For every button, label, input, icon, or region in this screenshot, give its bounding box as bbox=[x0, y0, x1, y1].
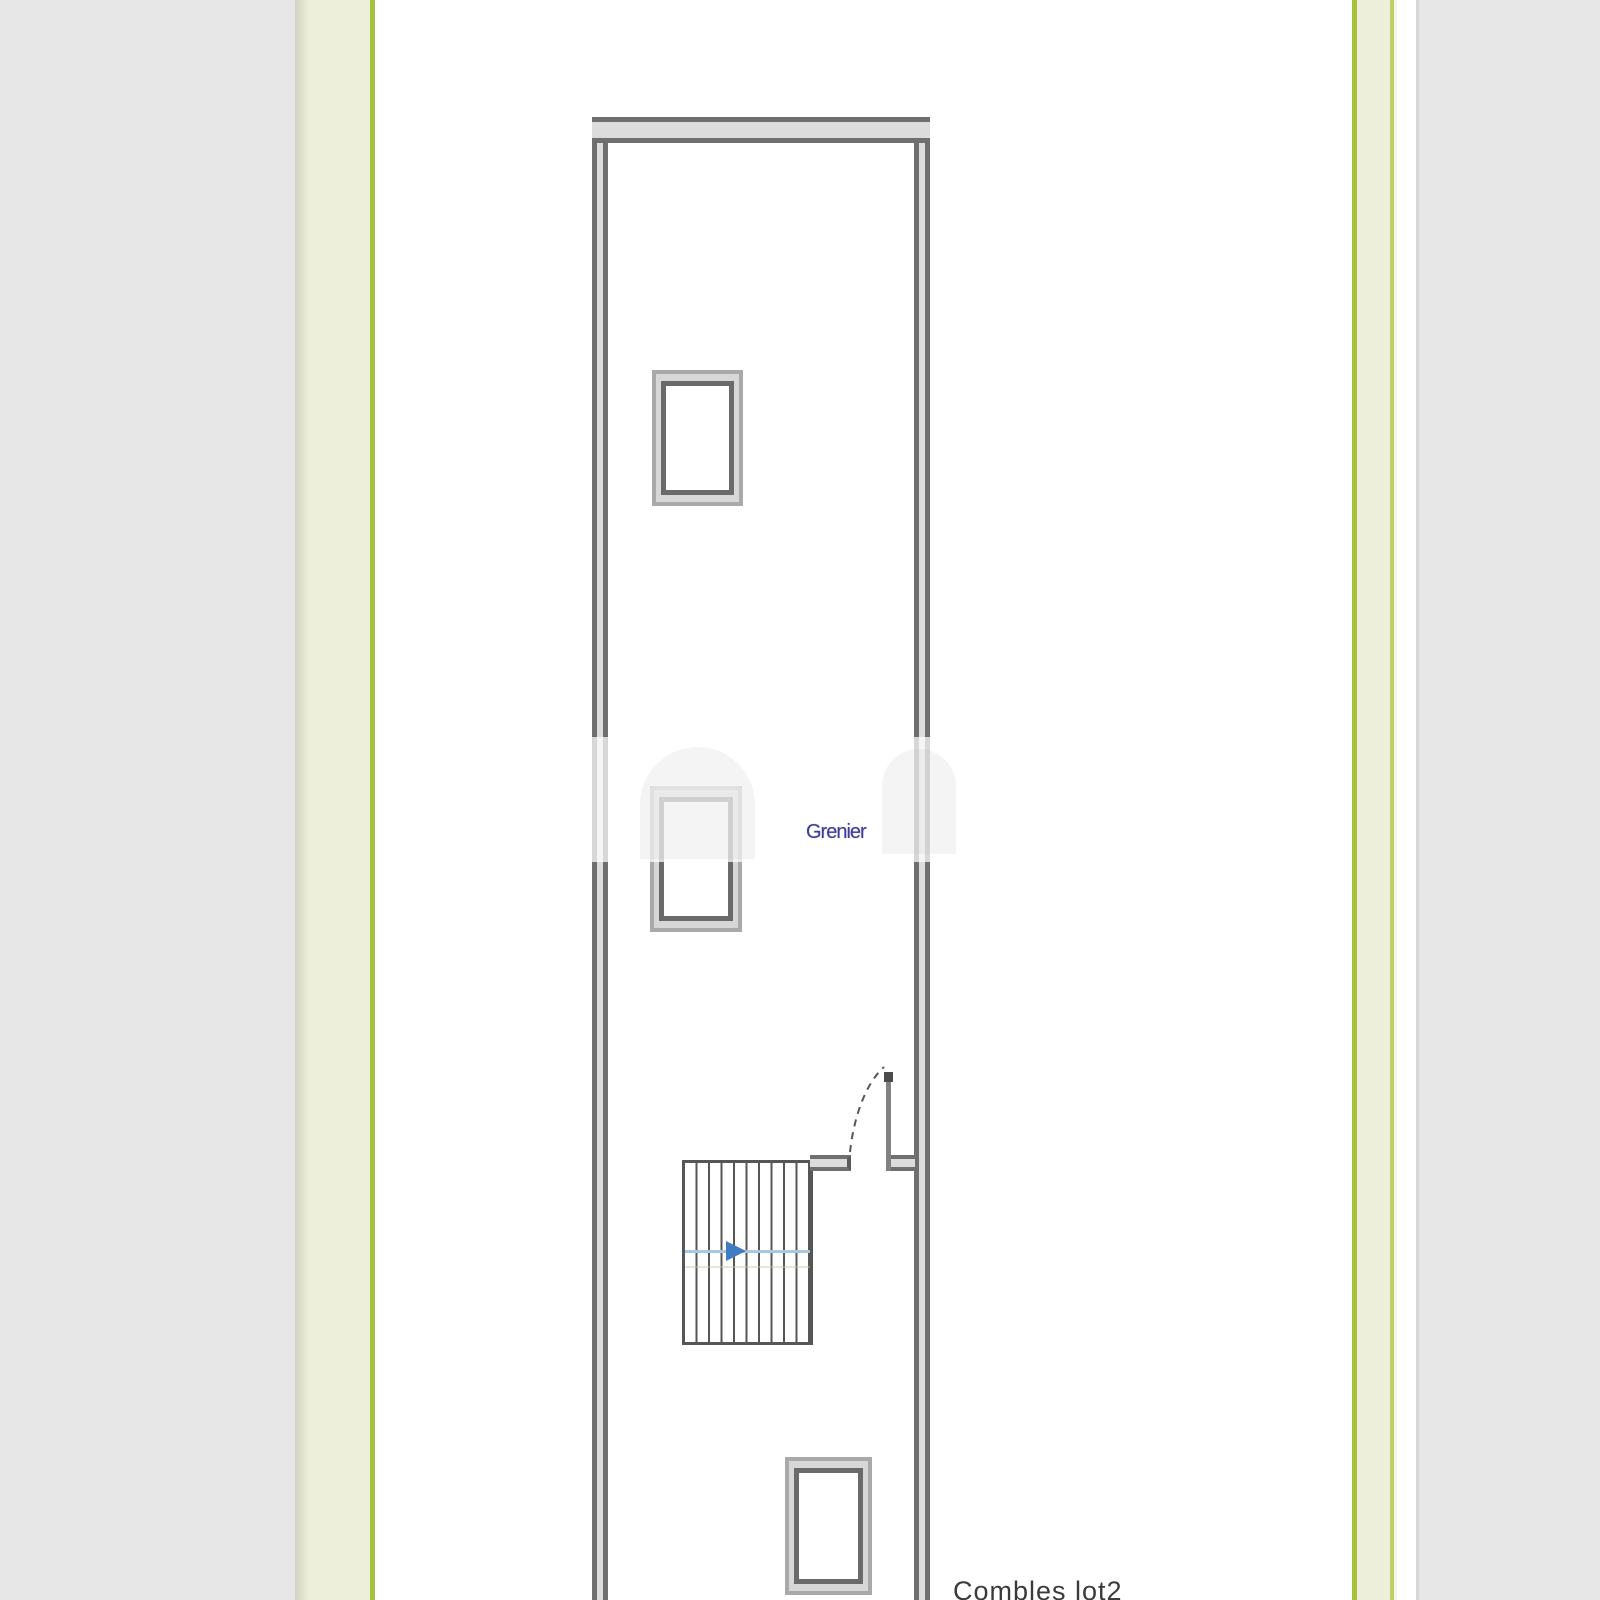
page-edge-strip-right-outer bbox=[1394, 0, 1397, 1600]
viewer-margin-left bbox=[0, 0, 295, 1600]
viewer-margin-right bbox=[1416, 0, 1600, 1600]
wall-top bbox=[592, 117, 930, 143]
document-viewer: Grenier Combles lot2 bbox=[0, 0, 1600, 1600]
staircase bbox=[682, 1160, 813, 1345]
page-binding-line-left bbox=[370, 0, 375, 1600]
door-hinge-cap bbox=[884, 1072, 893, 1082]
watermark-letter-shape-icon bbox=[882, 749, 956, 854]
skylight-window-1-inner-frame bbox=[661, 381, 734, 495]
plan-caption: Combles lot2 bbox=[953, 1576, 1123, 1600]
stair-guide-line bbox=[685, 1250, 810, 1253]
stair-guide-line-faint bbox=[685, 1266, 810, 1268]
watermark bbox=[576, 737, 966, 862]
page-edge-strip-right bbox=[1357, 0, 1390, 1600]
page-edge-strip-left bbox=[295, 0, 370, 1600]
skylight-window-3-inner-frame bbox=[794, 1468, 863, 1584]
door-jamb-wall-left bbox=[810, 1155, 851, 1171]
skylight-window-3 bbox=[785, 1457, 872, 1595]
stairs-direction-arrow-icon bbox=[726, 1241, 746, 1261]
watermark-letter-shape-icon bbox=[640, 747, 755, 859]
room-label: Grenier bbox=[806, 821, 866, 844]
door-leaf bbox=[886, 1072, 891, 1171]
skylight-window-1 bbox=[652, 370, 743, 506]
